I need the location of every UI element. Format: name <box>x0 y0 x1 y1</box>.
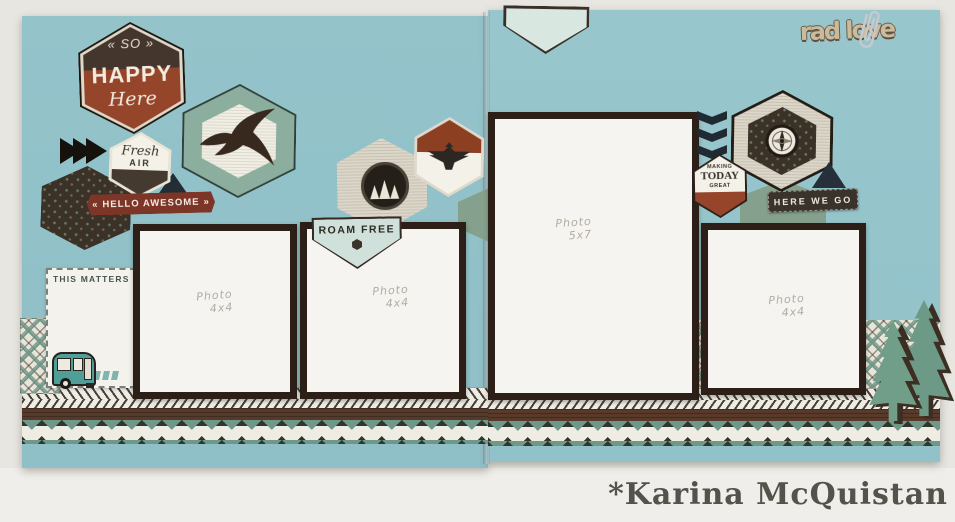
teal-tick-marks-icon <box>94 367 121 385</box>
photo-size-label: 4x4 <box>384 296 409 311</box>
today-text: TODAY <box>693 170 747 183</box>
banner-right-arrow: » <box>203 196 210 207</box>
roam-free-label: ROAM FREE <box>314 223 400 236</box>
scrapbook-photo: THIS MATTERS Photo 4x4 Photo 4x4 ROAM FR… <box>0 0 955 522</box>
photo-size-label: 4x4 <box>780 305 805 320</box>
happy-text: HAPPY <box>78 60 185 90</box>
rad-love-chipboard: rad love <box>799 14 925 58</box>
aztec-border-left <box>22 420 488 444</box>
here-we-go-label: HERE WE GO <box>774 194 853 207</box>
photo-size-label: 5x7 <box>568 227 593 242</box>
triangle-icon <box>812 162 846 188</box>
banner-left-arrow: « <box>92 199 99 210</box>
chevron-down-icon <box>697 111 727 162</box>
air-text: AIR <box>109 157 171 169</box>
pennant-emblem-icon <box>352 239 362 250</box>
camper-wheel <box>60 378 71 389</box>
here-text: Here <box>79 86 186 112</box>
camper-step <box>86 383 94 388</box>
photo-slot: Photo 4x4 <box>701 223 866 395</box>
camper-window <box>73 358 83 371</box>
thunderbird-icon <box>426 141 473 172</box>
camper-icon <box>52 352 98 392</box>
camper-door <box>84 358 92 380</box>
hello-awesome-label: HELLO AWESOME <box>102 197 199 211</box>
photo-size-label: 4x4 <box>209 300 234 315</box>
camper-window <box>57 358 71 371</box>
photo-slot: Photo 4x4 <box>133 224 297 399</box>
pine-badge-icon <box>361 162 410 211</box>
here-we-go-banner: HERE WE GO <box>768 188 859 212</box>
eagle-icon <box>193 106 286 175</box>
watermark-credit: *Karina McQuistan <box>608 477 948 512</box>
photo-slot: Photo 5x7 <box>488 112 699 400</box>
hello-awesome-banner: « HELLO AWESOME » <box>87 191 216 215</box>
triple-arrows-icon <box>60 138 99 169</box>
this-matters-title: THIS MATTERS <box>53 274 130 284</box>
compass-icon <box>765 124 800 159</box>
great-text: GREAT <box>693 183 747 190</box>
aztec-border-right <box>488 421 940 446</box>
